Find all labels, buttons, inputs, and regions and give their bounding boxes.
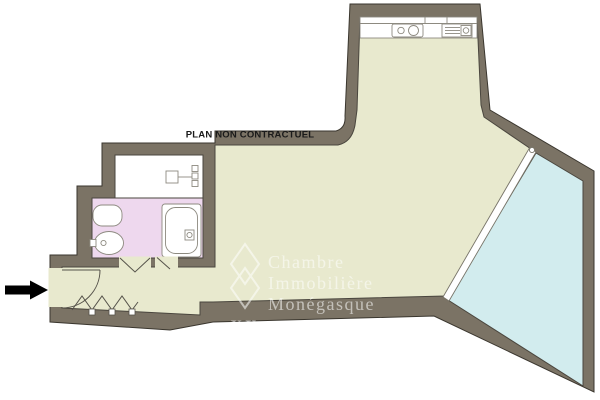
bathtub-icon (162, 204, 201, 257)
watermark-line2: Immobilière (268, 273, 373, 293)
watermark-mark: XX (230, 318, 259, 335)
watermark-line1: Chambre (268, 252, 344, 272)
disclaimer-label: PLAN NON CONTRACTUEL (186, 130, 315, 141)
watermark-line3: Monégasque (268, 294, 375, 314)
dressing-room-floor (115, 155, 203, 198)
service-door (155, 257, 178, 270)
toilet-icon (93, 205, 122, 226)
cooktop-appliance-icon (442, 24, 472, 37)
entrance-arrow-icon (5, 281, 48, 300)
floorplan-drawing: PLAN NON CONTRACTUEL XX Chambre Immobili… (0, 0, 600, 400)
kitchen-sink-icon (392, 24, 423, 37)
floorplan-page: PLAN NON CONTRACTUEL XX Chambre Immobili… (0, 0, 600, 400)
